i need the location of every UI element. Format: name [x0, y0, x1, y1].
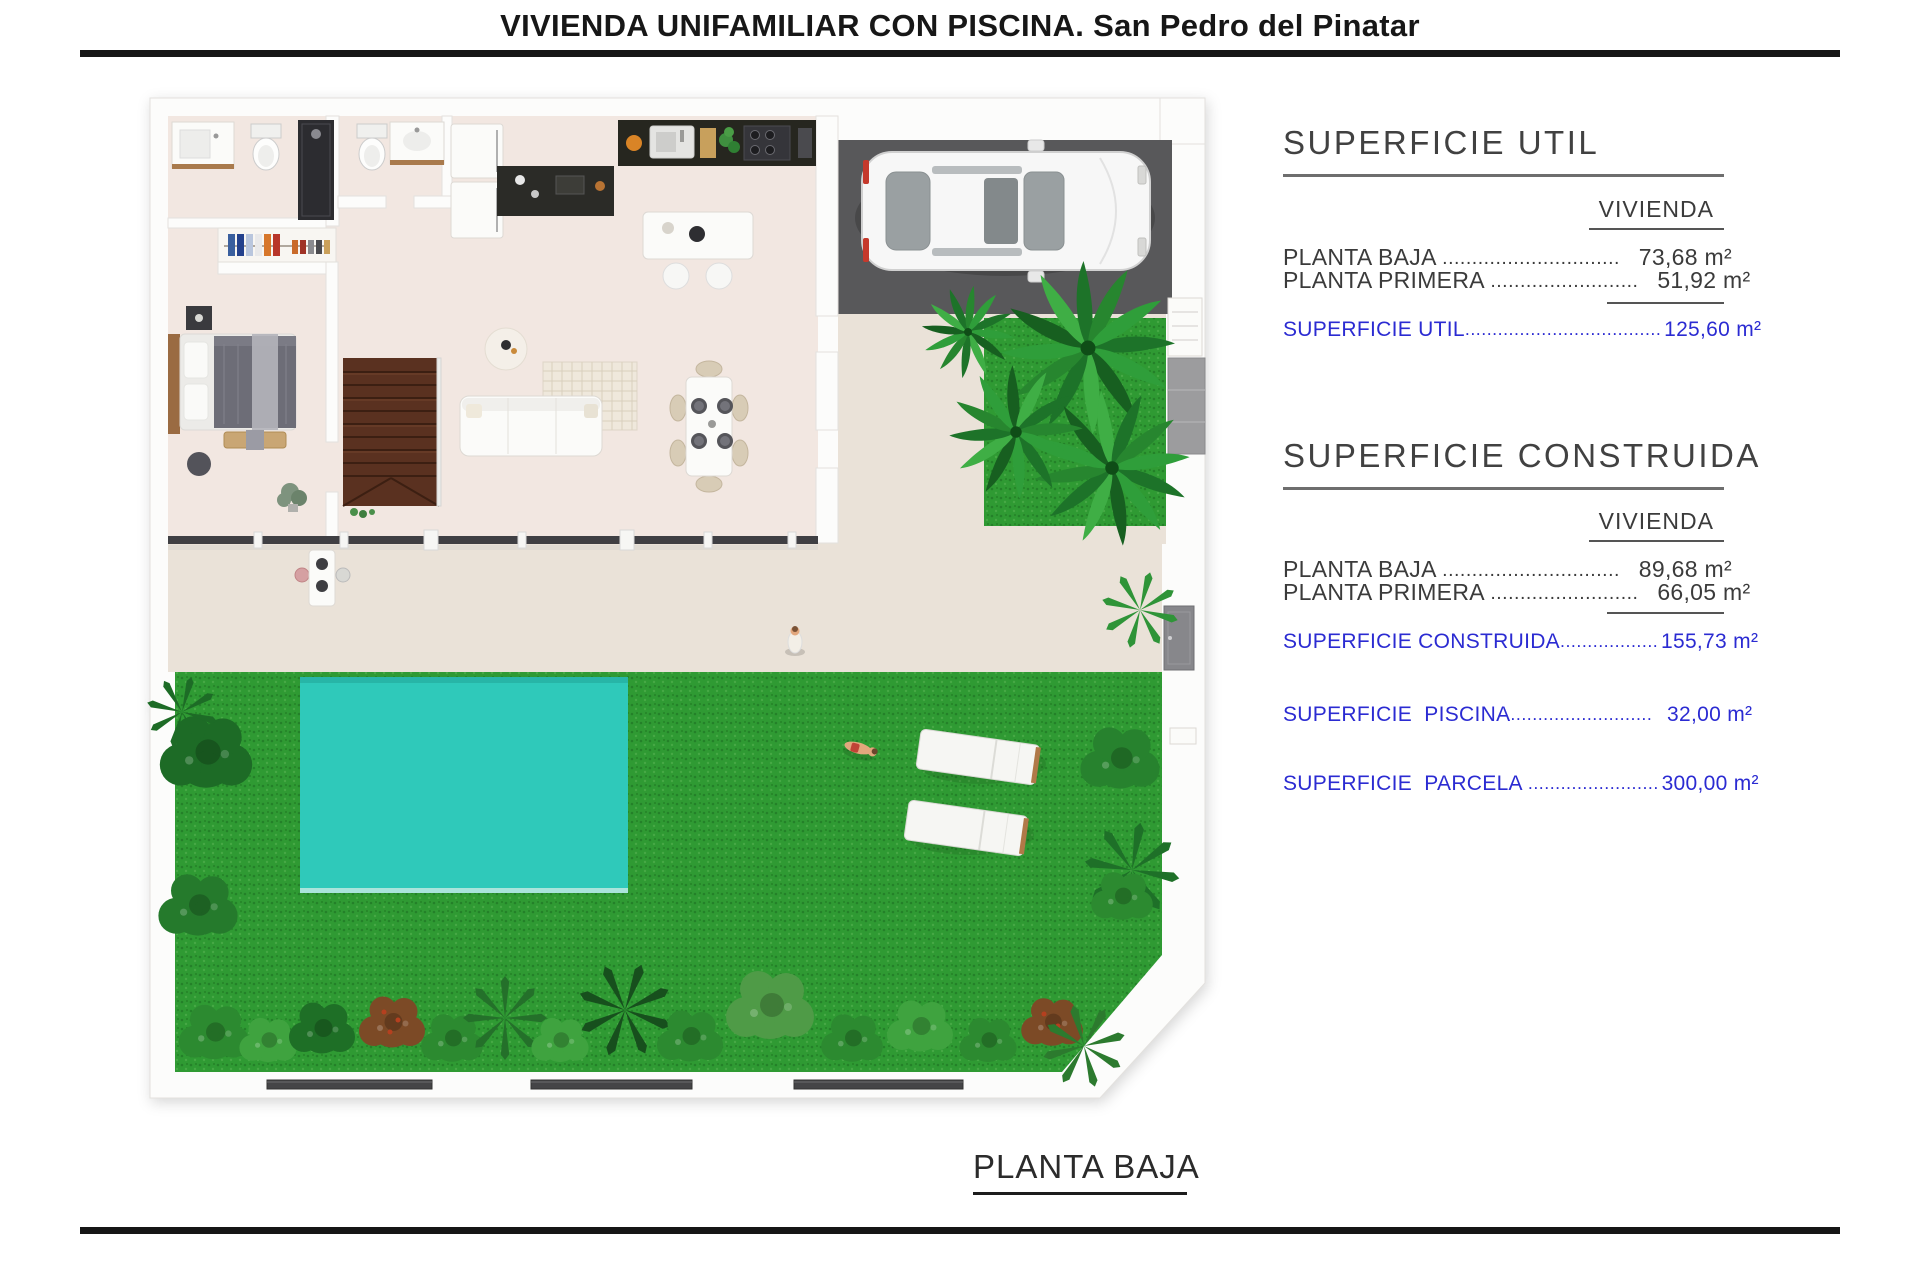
- value: 125,60 m²: [1661, 318, 1761, 342]
- section-heading-util: SUPERFICIE UTIL: [1283, 124, 1724, 177]
- tail-light: [863, 160, 869, 184]
- utility-box: [1170, 728, 1196, 744]
- bed: [168, 334, 296, 434]
- value: 66,05 m²: [1638, 579, 1750, 606]
- value: 155,73 m²: [1658, 630, 1758, 654]
- car: [855, 140, 1155, 282]
- page: VIVIENDA UNIFAMILIAR CON PISCINA. San Pe…: [0, 0, 1920, 1280]
- wardrobe: [218, 228, 336, 262]
- page-title: VIVIENDA UNIFAMILIAR CON PISCINA. San Pe…: [0, 8, 1920, 44]
- side-mirror: [1028, 140, 1044, 151]
- pool: [300, 677, 628, 893]
- house-floor: [168, 116, 818, 543]
- total-superficie-piscina: SUPERFICIE PISCINA......................…: [1283, 703, 1724, 727]
- value: 32,00 m²: [1652, 703, 1752, 727]
- floor-label: PLANTA BAJA: [973, 1148, 1187, 1195]
- sum-line: [1607, 302, 1724, 304]
- side-entrance: [1168, 298, 1205, 454]
- section-heading-construida: SUPERFICIE CONSTRUIDA: [1283, 437, 1724, 490]
- floor-plan: [140, 90, 1215, 1110]
- sum-line: [1607, 612, 1724, 614]
- sunroof: [984, 178, 1018, 244]
- column-header-vivienda: VIVIENDA: [1283, 508, 1724, 542]
- rear-window: [886, 172, 930, 250]
- bottom-rule: [80, 1227, 1840, 1234]
- row-planta-primera-construida: PLANTA PRIMERA .........................…: [1283, 579, 1724, 606]
- total-superficie-parcela: SUPERFICIE PARCELA .....................…: [1283, 772, 1724, 796]
- value: 300,00 m²: [1659, 772, 1759, 796]
- tail-light: [863, 238, 869, 262]
- sofa: [460, 396, 602, 456]
- total-superficie-util: SUPERFICIE UTIL.........................…: [1283, 318, 1724, 342]
- column-header-vivienda: VIVIENDA: [1283, 196, 1724, 230]
- pouf: [187, 452, 211, 476]
- stairs: [343, 358, 441, 518]
- fence: [267, 1080, 963, 1089]
- top-rule: [80, 50, 1840, 57]
- row-planta-primera-util: PLANTA PRIMERA .........................…: [1283, 267, 1724, 294]
- bathroom-2: [357, 122, 444, 170]
- total-superficie-construida: SUPERFICIE CONSTRUIDA.................. …: [1283, 630, 1724, 654]
- value: 51,92 m²: [1638, 267, 1750, 294]
- windshield: [1024, 172, 1064, 250]
